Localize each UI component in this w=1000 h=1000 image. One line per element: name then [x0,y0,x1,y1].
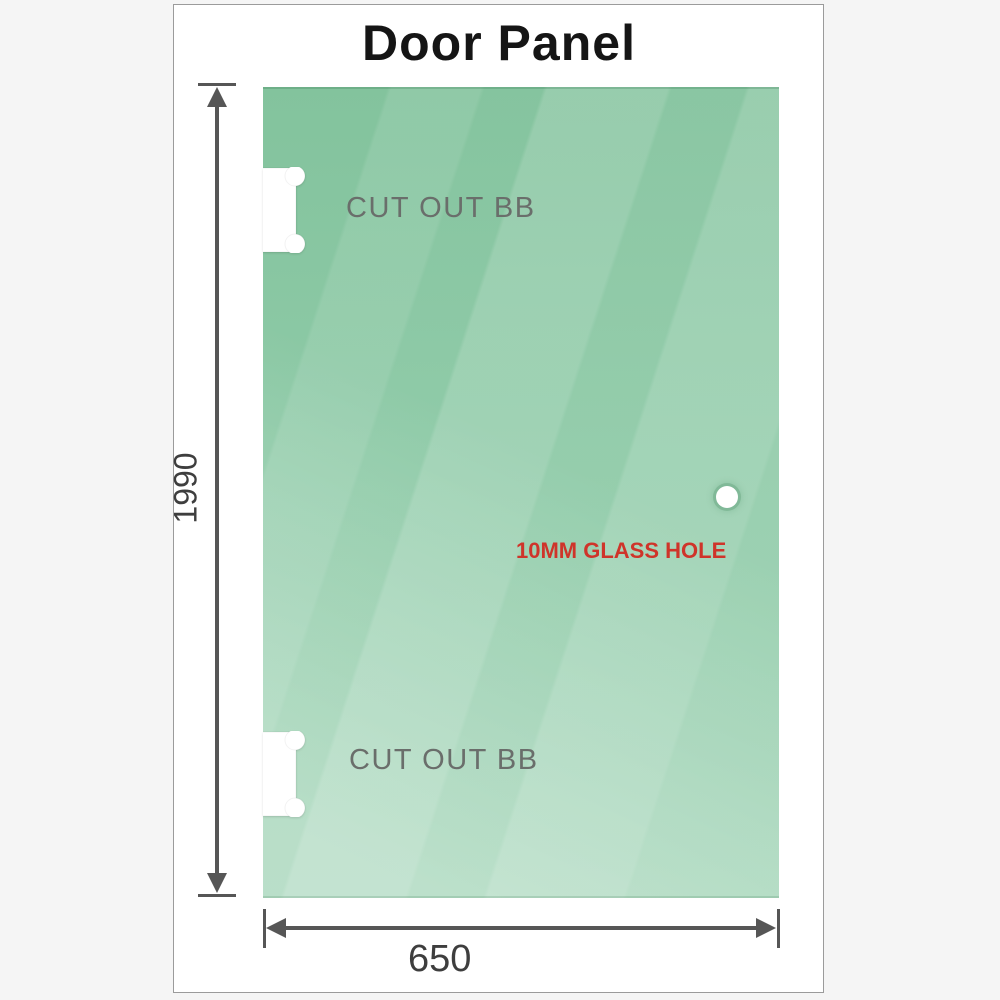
cutout-bottom-label: CUT OUT BB [349,744,539,777]
width-dimension-label: 650 [408,938,471,981]
cutout-top-label: CUT OUT BB [346,192,536,225]
glass-hole-label: 10MM GLASS HOLE [516,538,726,564]
glass-hole-icon [716,486,738,508]
hinge-cutout-top-icon [263,167,309,253]
drawing-stage: Door Panel CUT OUT BB CUT OUT BB 10MM GL… [0,0,1000,1000]
drawing-title: Door Panel [173,14,825,72]
hinge-cutout-bottom-icon [263,731,309,817]
height-dimension-label: 1990 [168,452,205,523]
